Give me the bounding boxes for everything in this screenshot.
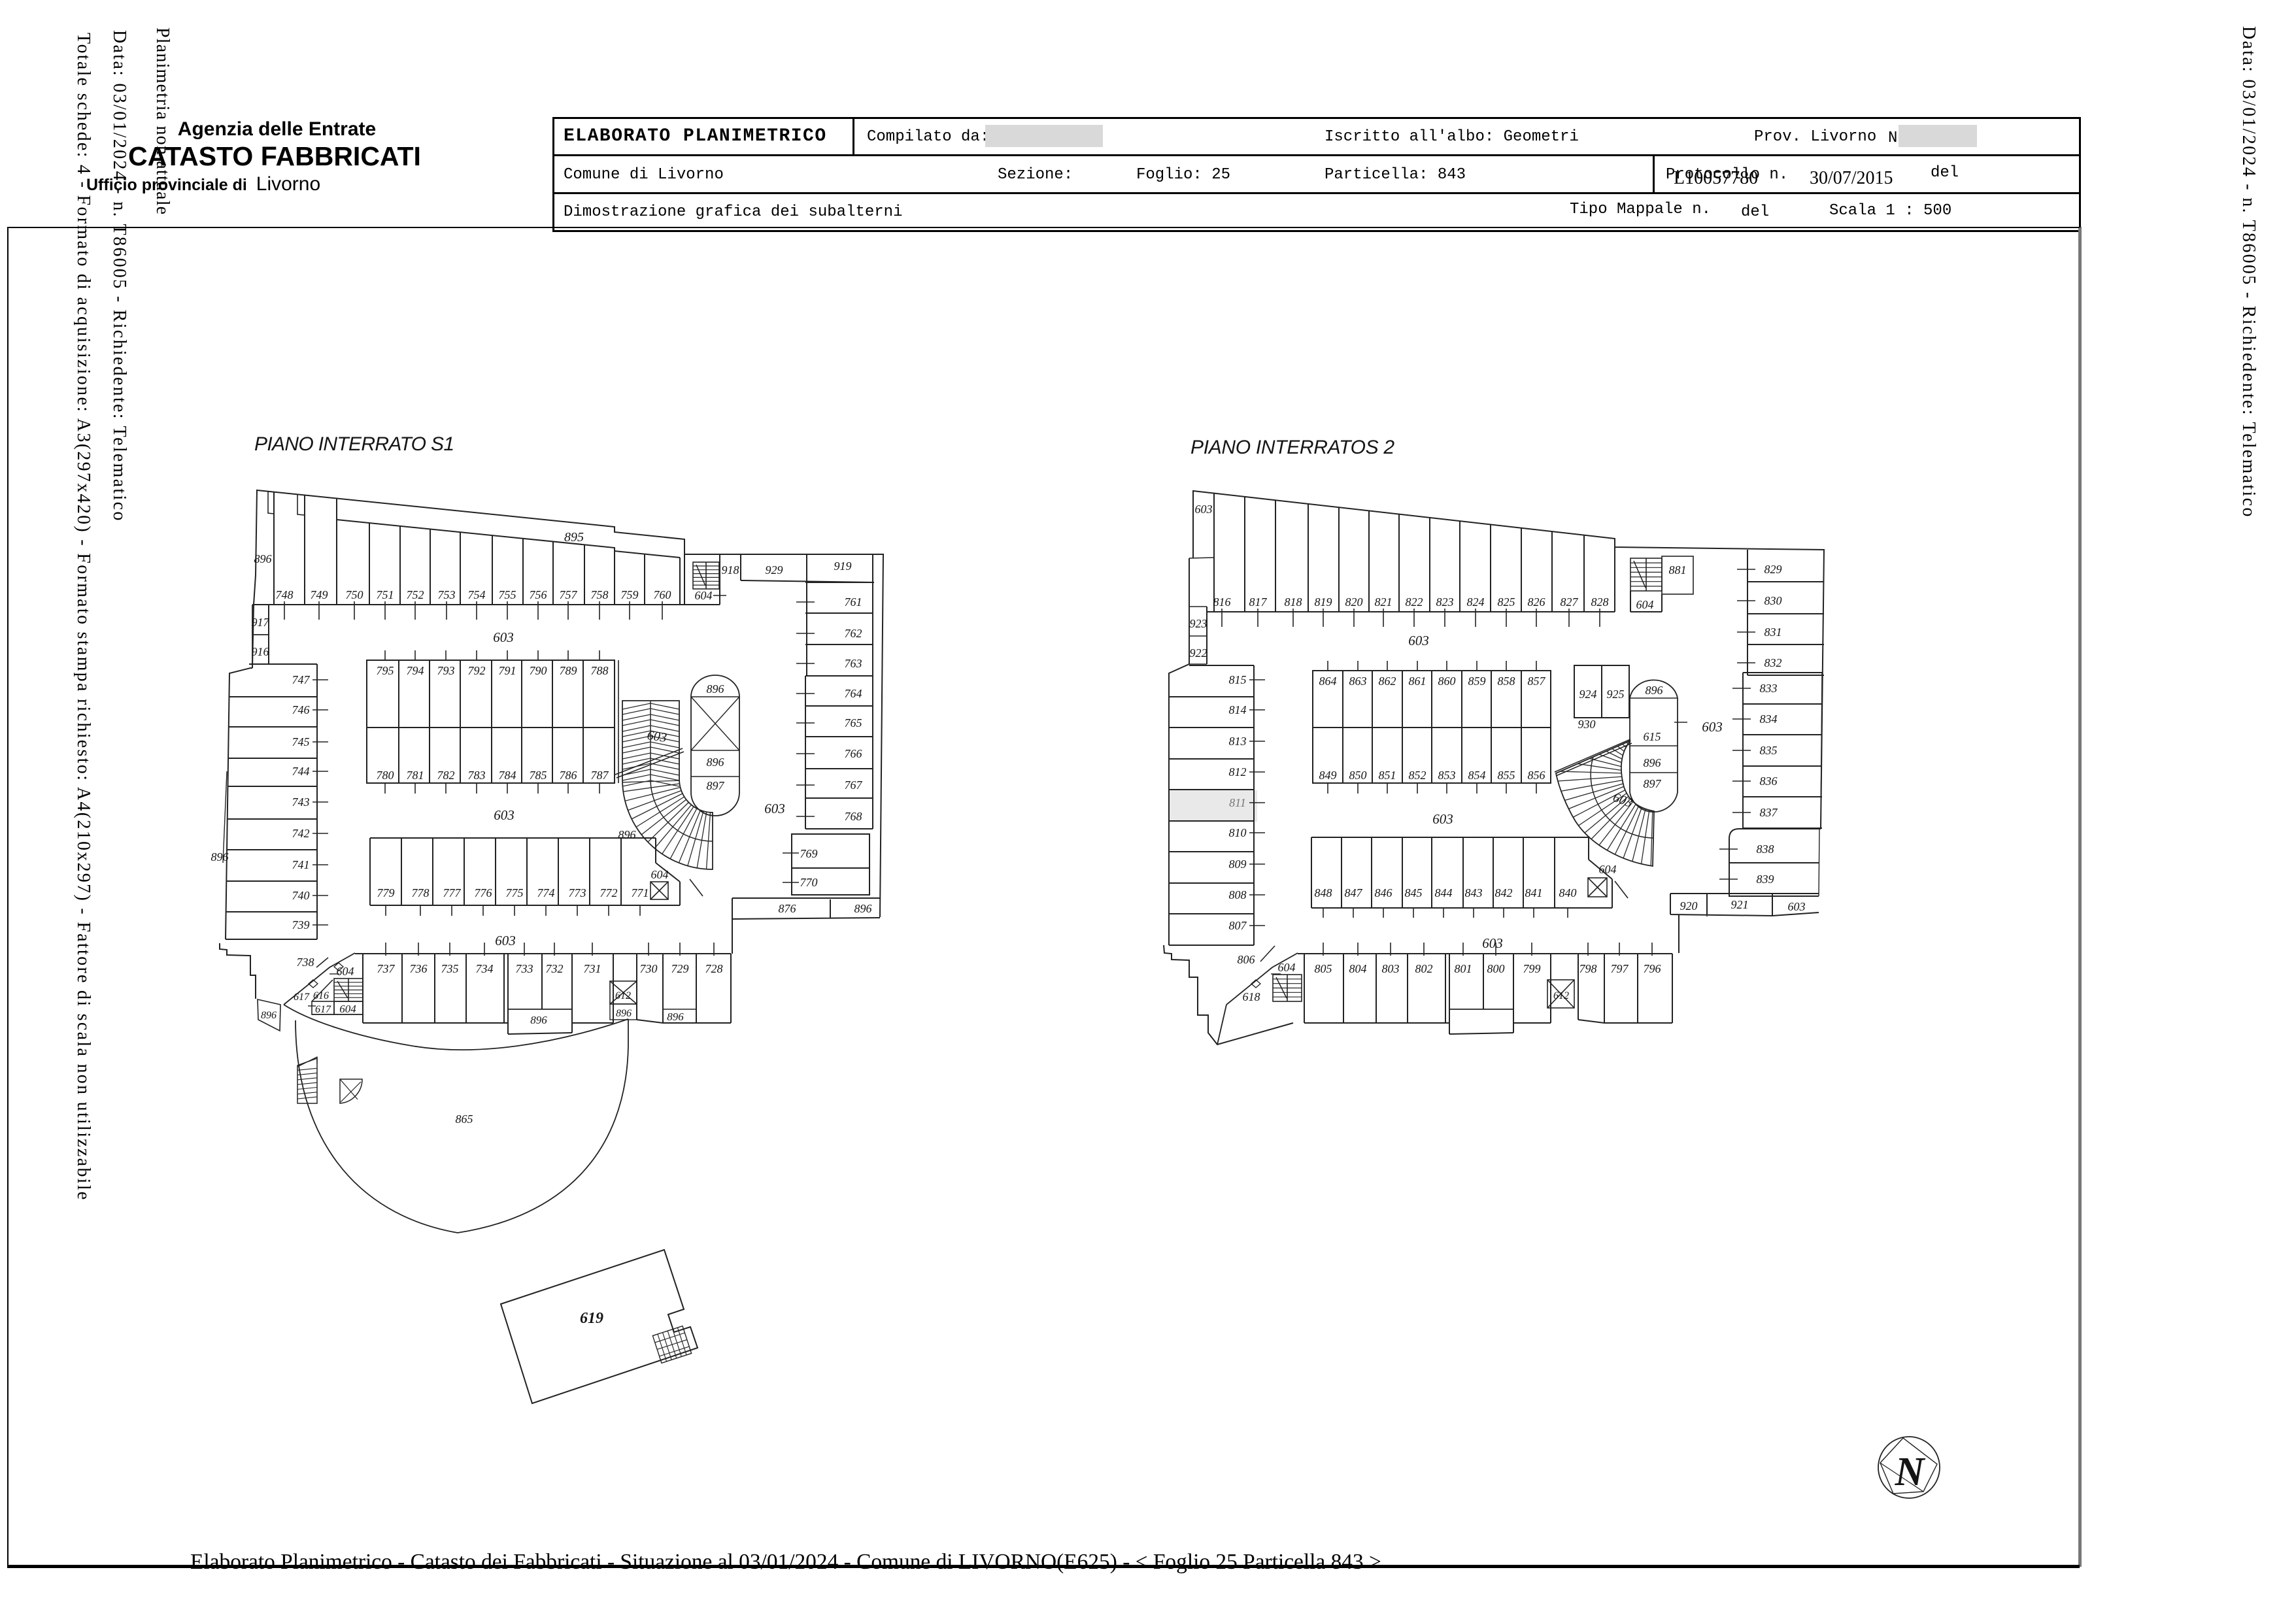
svg-text:740: 740 bbox=[292, 889, 310, 902]
svg-text:845: 845 bbox=[1405, 886, 1423, 899]
svg-text:923: 923 bbox=[1190, 617, 1207, 630]
svg-text:770: 770 bbox=[800, 876, 818, 889]
svg-text:857: 857 bbox=[1528, 675, 1546, 688]
svg-text:816: 816 bbox=[1213, 595, 1231, 609]
svg-text:844: 844 bbox=[1435, 886, 1453, 899]
svg-text:756: 756 bbox=[530, 588, 547, 601]
svg-text:834: 834 bbox=[1760, 712, 1778, 726]
svg-text:776: 776 bbox=[475, 886, 492, 899]
svg-text:612: 612 bbox=[615, 990, 631, 1001]
svg-text:833: 833 bbox=[1760, 682, 1778, 695]
svg-text:604: 604 bbox=[1278, 961, 1296, 974]
svg-text:742: 742 bbox=[292, 827, 310, 840]
svg-text:823: 823 bbox=[1436, 595, 1454, 609]
svg-text:897: 897 bbox=[1644, 777, 1662, 790]
svg-text:765: 765 bbox=[845, 716, 862, 729]
svg-text:773: 773 bbox=[569, 886, 586, 899]
svg-text:763: 763 bbox=[845, 657, 862, 670]
svg-text:824: 824 bbox=[1467, 595, 1485, 609]
svg-text:618: 618 bbox=[1243, 990, 1260, 1003]
svg-text:805: 805 bbox=[1315, 962, 1332, 975]
svg-text:786: 786 bbox=[560, 769, 577, 782]
svg-text:818: 818 bbox=[1285, 595, 1302, 609]
svg-text:604: 604 bbox=[1636, 598, 1654, 611]
svg-text:787: 787 bbox=[591, 769, 609, 782]
svg-text:896: 896 bbox=[618, 828, 636, 841]
svg-text:810: 810 bbox=[1229, 826, 1247, 839]
svg-text:762: 762 bbox=[845, 627, 862, 640]
svg-text:847: 847 bbox=[1345, 886, 1363, 899]
svg-text:808: 808 bbox=[1229, 888, 1247, 901]
svg-text:769: 769 bbox=[800, 847, 818, 860]
svg-text:603: 603 bbox=[1195, 503, 1213, 516]
svg-text:759: 759 bbox=[621, 588, 639, 601]
svg-text:838: 838 bbox=[1757, 843, 1774, 856]
svg-text:826: 826 bbox=[1528, 595, 1545, 609]
svg-text:832: 832 bbox=[1764, 656, 1782, 669]
svg-text:862: 862 bbox=[1379, 675, 1396, 688]
svg-text:750: 750 bbox=[346, 588, 363, 601]
svg-text:896: 896 bbox=[707, 756, 724, 769]
svg-text:604: 604 bbox=[651, 868, 669, 881]
svg-text:731: 731 bbox=[584, 962, 601, 975]
svg-text:734: 734 bbox=[476, 962, 494, 975]
svg-text:854: 854 bbox=[1468, 769, 1486, 782]
svg-text:806: 806 bbox=[1238, 953, 1255, 966]
svg-text:815: 815 bbox=[1229, 673, 1247, 686]
svg-text:827: 827 bbox=[1561, 595, 1579, 609]
svg-text:752: 752 bbox=[407, 588, 424, 601]
svg-text:790: 790 bbox=[530, 664, 547, 677]
svg-text:741: 741 bbox=[292, 858, 310, 871]
svg-text:732: 732 bbox=[546, 962, 564, 975]
svg-text:921: 921 bbox=[1731, 898, 1749, 911]
svg-text:801: 801 bbox=[1455, 962, 1472, 975]
svg-text:743: 743 bbox=[292, 795, 310, 809]
svg-text:730: 730 bbox=[640, 962, 658, 975]
svg-text:809: 809 bbox=[1229, 858, 1247, 871]
svg-text:814: 814 bbox=[1229, 703, 1247, 716]
svg-text:851: 851 bbox=[1379, 769, 1396, 782]
svg-text:896: 896 bbox=[211, 850, 229, 863]
svg-text:735: 735 bbox=[441, 962, 459, 975]
svg-text:619: 619 bbox=[580, 1310, 603, 1327]
svg-text:744: 744 bbox=[292, 765, 310, 778]
svg-text:918: 918 bbox=[722, 563, 739, 577]
svg-text:860: 860 bbox=[1438, 675, 1456, 688]
svg-text:896: 896 bbox=[1644, 756, 1661, 769]
svg-text:764: 764 bbox=[845, 687, 862, 700]
svg-text:922: 922 bbox=[1190, 646, 1207, 660]
svg-text:789: 789 bbox=[560, 664, 577, 677]
svg-text:794: 794 bbox=[407, 664, 424, 677]
svg-text:603: 603 bbox=[764, 801, 785, 816]
svg-text:PIANO INTERRATOS 2: PIANO INTERRATOS 2 bbox=[1190, 437, 1394, 458]
svg-text:822: 822 bbox=[1406, 595, 1423, 609]
svg-text:804: 804 bbox=[1349, 962, 1367, 975]
svg-text:603: 603 bbox=[495, 933, 516, 948]
svg-text:831: 831 bbox=[1764, 626, 1782, 639]
svg-text:767: 767 bbox=[845, 778, 863, 792]
svg-text:771: 771 bbox=[632, 886, 649, 899]
svg-text:799: 799 bbox=[1523, 962, 1541, 975]
svg-text:612: 612 bbox=[1553, 990, 1569, 1001]
svg-text:821: 821 bbox=[1375, 595, 1393, 609]
svg-text:749: 749 bbox=[311, 588, 328, 601]
svg-text:603: 603 bbox=[1432, 811, 1453, 827]
svg-text:775: 775 bbox=[506, 886, 524, 899]
svg-text:616: 616 bbox=[313, 990, 329, 1001]
svg-text:924: 924 bbox=[1579, 688, 1597, 701]
svg-text:830: 830 bbox=[1764, 594, 1782, 607]
svg-text:603: 603 bbox=[1702, 719, 1723, 735]
svg-text:778: 778 bbox=[412, 886, 430, 899]
svg-text:PIANO INTERRATO S1: PIANO INTERRATO S1 bbox=[254, 433, 454, 455]
svg-text:739: 739 bbox=[292, 918, 310, 931]
svg-text:797: 797 bbox=[1611, 962, 1629, 975]
svg-text:783: 783 bbox=[468, 769, 486, 782]
svg-text:768: 768 bbox=[845, 810, 862, 823]
svg-text:774: 774 bbox=[537, 886, 555, 899]
svg-text:729: 729 bbox=[671, 962, 689, 975]
svg-text:733: 733 bbox=[516, 962, 533, 975]
svg-text:852: 852 bbox=[1409, 769, 1427, 782]
svg-text:603: 603 bbox=[1611, 790, 1634, 811]
svg-text:766: 766 bbox=[845, 747, 862, 760]
svg-text:813: 813 bbox=[1229, 735, 1247, 748]
svg-text:861: 861 bbox=[1409, 675, 1427, 688]
svg-text:772: 772 bbox=[600, 886, 618, 899]
svg-text:792: 792 bbox=[468, 664, 486, 677]
svg-text:603: 603 bbox=[646, 728, 667, 745]
svg-text:761: 761 bbox=[845, 595, 862, 609]
svg-text:841: 841 bbox=[1525, 886, 1543, 899]
svg-text:876: 876 bbox=[779, 902, 796, 915]
svg-text:849: 849 bbox=[1319, 769, 1337, 782]
svg-text:929: 929 bbox=[766, 563, 783, 577]
svg-text:755: 755 bbox=[499, 588, 516, 601]
svg-text:760: 760 bbox=[654, 588, 671, 601]
svg-text:738: 738 bbox=[297, 956, 314, 969]
svg-text:896: 896 bbox=[667, 1011, 684, 1023]
svg-text:757: 757 bbox=[560, 588, 578, 601]
svg-text:795: 795 bbox=[377, 664, 394, 677]
svg-text:896: 896 bbox=[616, 1008, 632, 1019]
svg-text:930: 930 bbox=[1578, 718, 1596, 731]
svg-text:863: 863 bbox=[1349, 675, 1367, 688]
svg-text:896: 896 bbox=[261, 1010, 277, 1021]
svg-text:800: 800 bbox=[1487, 962, 1505, 975]
svg-text:753: 753 bbox=[438, 588, 456, 601]
svg-text:N: N bbox=[1895, 1450, 1926, 1494]
svg-text:603: 603 bbox=[493, 629, 514, 645]
svg-text:840: 840 bbox=[1559, 886, 1577, 899]
svg-text:817: 817 bbox=[1249, 595, 1268, 609]
svg-text:603: 603 bbox=[1788, 900, 1806, 913]
svg-text:843: 843 bbox=[1465, 886, 1483, 899]
svg-text:604: 604 bbox=[695, 589, 713, 602]
svg-text:737: 737 bbox=[377, 962, 396, 975]
svg-text:842: 842 bbox=[1495, 886, 1513, 899]
svg-text:896: 896 bbox=[1646, 684, 1663, 697]
svg-text:919: 919 bbox=[834, 560, 852, 573]
svg-text:811: 811 bbox=[1229, 796, 1246, 809]
svg-text:779: 779 bbox=[377, 886, 395, 899]
svg-text:864: 864 bbox=[1319, 675, 1337, 688]
svg-text:748: 748 bbox=[276, 588, 294, 601]
svg-text:812: 812 bbox=[1229, 765, 1247, 778]
svg-text:781: 781 bbox=[407, 769, 424, 782]
svg-text:803: 803 bbox=[1382, 962, 1400, 975]
svg-text:855: 855 bbox=[1498, 769, 1515, 782]
svg-text:920: 920 bbox=[1680, 899, 1698, 912]
svg-text:807: 807 bbox=[1229, 919, 1247, 932]
svg-text:788: 788 bbox=[591, 664, 609, 677]
svg-text:798: 798 bbox=[1579, 962, 1597, 975]
svg-text:896: 896 bbox=[530, 1014, 547, 1026]
svg-text:896: 896 bbox=[707, 682, 724, 695]
svg-text:802: 802 bbox=[1415, 962, 1433, 975]
svg-text:825: 825 bbox=[1498, 595, 1515, 609]
svg-text:785: 785 bbox=[530, 769, 547, 782]
svg-text:791: 791 bbox=[499, 664, 516, 677]
svg-text:780: 780 bbox=[377, 769, 394, 782]
svg-text:728: 728 bbox=[705, 962, 723, 975]
svg-text:617: 617 bbox=[294, 992, 310, 1003]
svg-text:853: 853 bbox=[1438, 769, 1456, 782]
svg-text:819: 819 bbox=[1315, 595, 1332, 609]
svg-text:793: 793 bbox=[437, 664, 455, 677]
svg-text:850: 850 bbox=[1349, 769, 1367, 782]
svg-text:896: 896 bbox=[254, 552, 272, 565]
svg-text:917: 917 bbox=[252, 616, 270, 629]
svg-text:856: 856 bbox=[1528, 769, 1545, 782]
svg-text:604: 604 bbox=[337, 965, 354, 978]
svg-text:859: 859 bbox=[1468, 675, 1486, 688]
svg-text:736: 736 bbox=[410, 962, 428, 975]
svg-text:865: 865 bbox=[456, 1113, 473, 1126]
svg-text:747: 747 bbox=[292, 673, 311, 686]
svg-text:916: 916 bbox=[252, 645, 269, 658]
svg-text:925: 925 bbox=[1607, 688, 1625, 701]
svg-text:604: 604 bbox=[339, 1003, 356, 1015]
svg-text:897: 897 bbox=[707, 779, 725, 792]
svg-text:777: 777 bbox=[443, 886, 462, 899]
svg-text:881: 881 bbox=[1669, 563, 1687, 577]
svg-text:604: 604 bbox=[1599, 863, 1617, 876]
svg-text:836: 836 bbox=[1760, 775, 1778, 788]
svg-text:784: 784 bbox=[499, 769, 516, 782]
svg-text:603: 603 bbox=[1482, 935, 1503, 951]
svg-text:751: 751 bbox=[377, 588, 394, 601]
svg-text:895: 895 bbox=[564, 530, 584, 544]
svg-text:796: 796 bbox=[1644, 962, 1661, 975]
svg-text:837: 837 bbox=[1760, 806, 1778, 819]
svg-text:858: 858 bbox=[1498, 675, 1515, 688]
svg-text:758: 758 bbox=[591, 588, 609, 601]
svg-text:617: 617 bbox=[315, 1004, 331, 1015]
svg-text:754: 754 bbox=[468, 588, 486, 601]
svg-text:839: 839 bbox=[1757, 873, 1774, 886]
svg-text:848: 848 bbox=[1315, 886, 1332, 899]
svg-text:615: 615 bbox=[1644, 730, 1661, 743]
svg-text:896: 896 bbox=[854, 902, 872, 915]
svg-text:782: 782 bbox=[437, 769, 455, 782]
svg-text:846: 846 bbox=[1375, 886, 1393, 899]
svg-text:820: 820 bbox=[1345, 595, 1363, 609]
svg-text:835: 835 bbox=[1760, 744, 1778, 757]
svg-text:828: 828 bbox=[1591, 595, 1609, 609]
svg-text:746: 746 bbox=[292, 703, 310, 716]
svg-text:603: 603 bbox=[494, 807, 515, 823]
svg-text:603: 603 bbox=[1408, 633, 1429, 648]
svg-text:829: 829 bbox=[1764, 563, 1782, 576]
svg-text:745: 745 bbox=[292, 735, 310, 748]
